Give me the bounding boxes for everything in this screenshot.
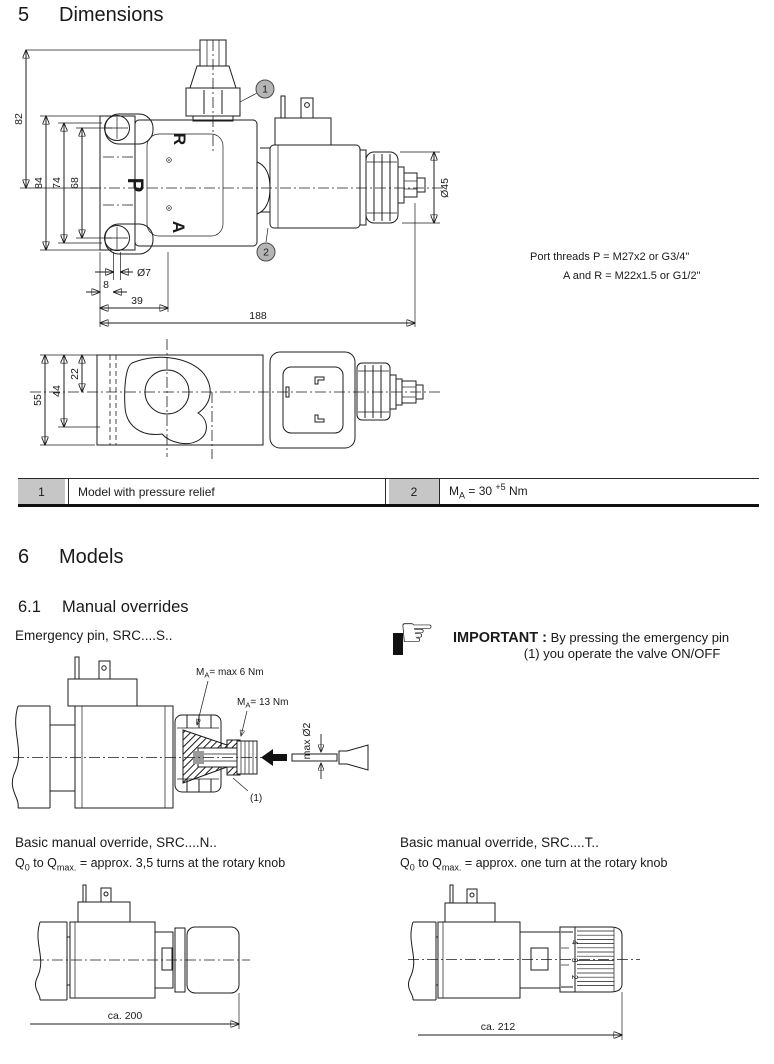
- torque-label-13: MA= 13 Nm: [237, 697, 288, 710]
- override-t-dimension: ca. 212: [418, 992, 622, 1040]
- dim-dia7-label: Ø7: [137, 267, 151, 279]
- front-view-drawing: 82 84 74 68 R P A: [10, 40, 470, 336]
- important-note: ☞ IMPORTANT : By pressing the emergency …: [391, 624, 771, 664]
- override-n-body: [33, 885, 250, 1000]
- emergency-pin-drawing: MA= max 6 Nm MA= 13 Nm: [5, 648, 390, 833]
- dim-ca212-label: ca. 212: [481, 1021, 516, 1033]
- dim-82-label: 82: [13, 113, 25, 125]
- dim-74-label: 74: [51, 177, 63, 189]
- important-text: IMPORTANT : By pressing the emergency pi…: [453, 630, 771, 661]
- pin-diameter-label: max Ø2: [301, 722, 313, 759]
- pointing-hand-icon: ☞: [391, 624, 449, 664]
- datasheet-page: 5 Dimensions 82 84 74 68: [0, 0, 774, 1064]
- dim-ca200-label: ca. 200: [108, 1010, 143, 1022]
- top-view-dimensions: 55 44 22: [32, 355, 100, 445]
- port-p-label: P: [123, 178, 148, 193]
- legend-num-2-text: 2: [411, 485, 418, 499]
- legend-num-1-text: 1: [38, 485, 45, 499]
- emergency-pin-tool: max Ø2: [261, 722, 368, 779]
- section61-title: Manual overrides: [62, 598, 189, 617]
- section6-title: Models: [59, 546, 123, 569]
- override-n-subtitle: Q0 to Qmax. = approx. 3,5 turns at the r…: [15, 856, 285, 873]
- emergency-pin-title: Emergency pin, SRC....S..: [15, 628, 173, 643]
- dim-39-label: 39: [131, 295, 143, 307]
- section6-heading: 6 Models: [18, 546, 123, 569]
- top-view-solenoid: [270, 352, 423, 448]
- section6-number: 6: [18, 546, 59, 569]
- top-view-body: [30, 339, 440, 459]
- port-threads-line2: A and R = M22x1.5 or G1/2": [563, 271, 701, 282]
- section5-title: Dimensions: [59, 4, 163, 27]
- override-t-body: [408, 885, 560, 1000]
- legend-table: 1 Model with pressure relief 2 MA = 30 +…: [18, 478, 759, 507]
- section61-heading: 6.1 Manual overrides: [18, 598, 189, 617]
- dim-188-label: 188: [249, 310, 267, 322]
- top-view-drawing: 55 44 22: [20, 337, 460, 467]
- important-line1: IMPORTANT : By pressing the emergency pi…: [453, 630, 771, 646]
- callout-1: 1: [262, 84, 268, 96]
- dim-22-label: 22: [69, 368, 81, 380]
- valve-body: R P A: [100, 114, 270, 254]
- override-t-drawing: 4 3 2 ca. 212: [400, 882, 730, 1052]
- legend-text-1: Model with pressure relief: [68, 479, 386, 504]
- ref-1-label: (1): [250, 793, 262, 804]
- right-pointing-index-icon: ☞: [399, 613, 435, 653]
- pressure-relief-valve: 1: [186, 40, 274, 153]
- port-a-label: A: [169, 221, 188, 233]
- override-t-title: Basic manual override, SRC....T..: [400, 835, 599, 850]
- legend-num-1: 1: [18, 479, 65, 504]
- callout-2: 2: [263, 247, 269, 259]
- important-line2: (1) you operate the valve ON/OFF: [453, 646, 771, 661]
- dim-dia45-label: Ø45: [439, 178, 451, 198]
- section5-heading: 5 Dimensions: [18, 4, 163, 27]
- dim-55-label: 55: [32, 394, 44, 406]
- torque-label-max6: MA= max 6 Nm: [196, 667, 264, 680]
- port-threads-line1: Port threads P = M27x2 or G3/4": [530, 252, 701, 263]
- dim-84-label: 84: [33, 177, 45, 189]
- legend-text-2: MA = 30 +5 Nm: [439, 479, 759, 504]
- legend-torque-value: MA = 30 +5 Nm: [449, 482, 528, 500]
- legend-num-2: 2: [389, 479, 439, 504]
- dim-8-label: 8: [103, 279, 109, 291]
- port-r-label: R: [170, 133, 189, 145]
- override-t-subtitle: Q0 to Qmax. = approx. one turn at the ro…: [400, 856, 667, 873]
- section5-number: 5: [18, 4, 59, 27]
- override-n-title: Basic manual override, SRC....N..: [15, 835, 217, 850]
- override-n-drawing: ca. 200: [25, 882, 365, 1047]
- solenoid-section: [12, 657, 173, 808]
- torque-labels: MA= max 6 Nm MA= 13 Nm: [196, 667, 288, 736]
- port-threads-note: Port threads P = M27x2 or G3/4" A and R …: [530, 252, 701, 282]
- legend-text-1-label: Model with pressure relief: [78, 485, 215, 499]
- dim-44-label: 44: [51, 385, 63, 397]
- section61-number: 6.1: [18, 598, 62, 617]
- dim-68-label: 68: [69, 177, 81, 189]
